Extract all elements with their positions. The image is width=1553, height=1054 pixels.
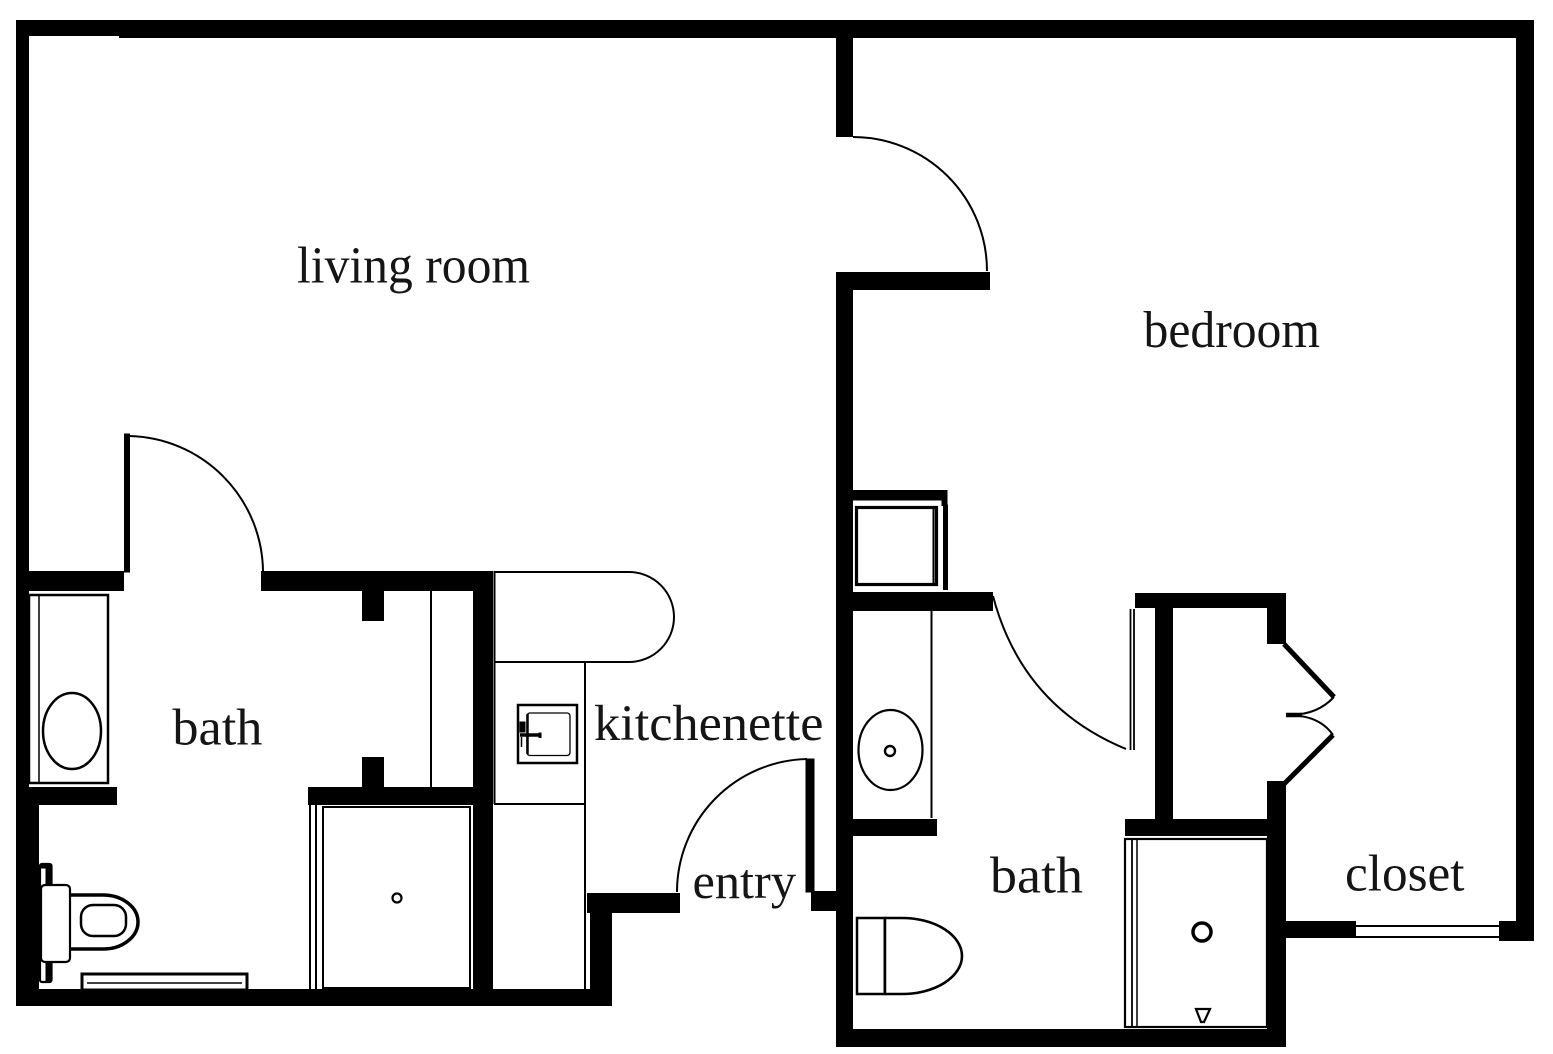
svg-text:bath: bath [172,700,262,757]
svg-text:closet: closet [1345,846,1465,903]
svg-text:bedroom: bedroom [1144,302,1321,359]
svg-text:living room: living room [297,238,530,295]
svg-text:kitchenette: kitchenette [594,696,824,752]
svg-text:entry: entry [693,853,797,909]
svg-text:bath: bath [990,848,1083,905]
